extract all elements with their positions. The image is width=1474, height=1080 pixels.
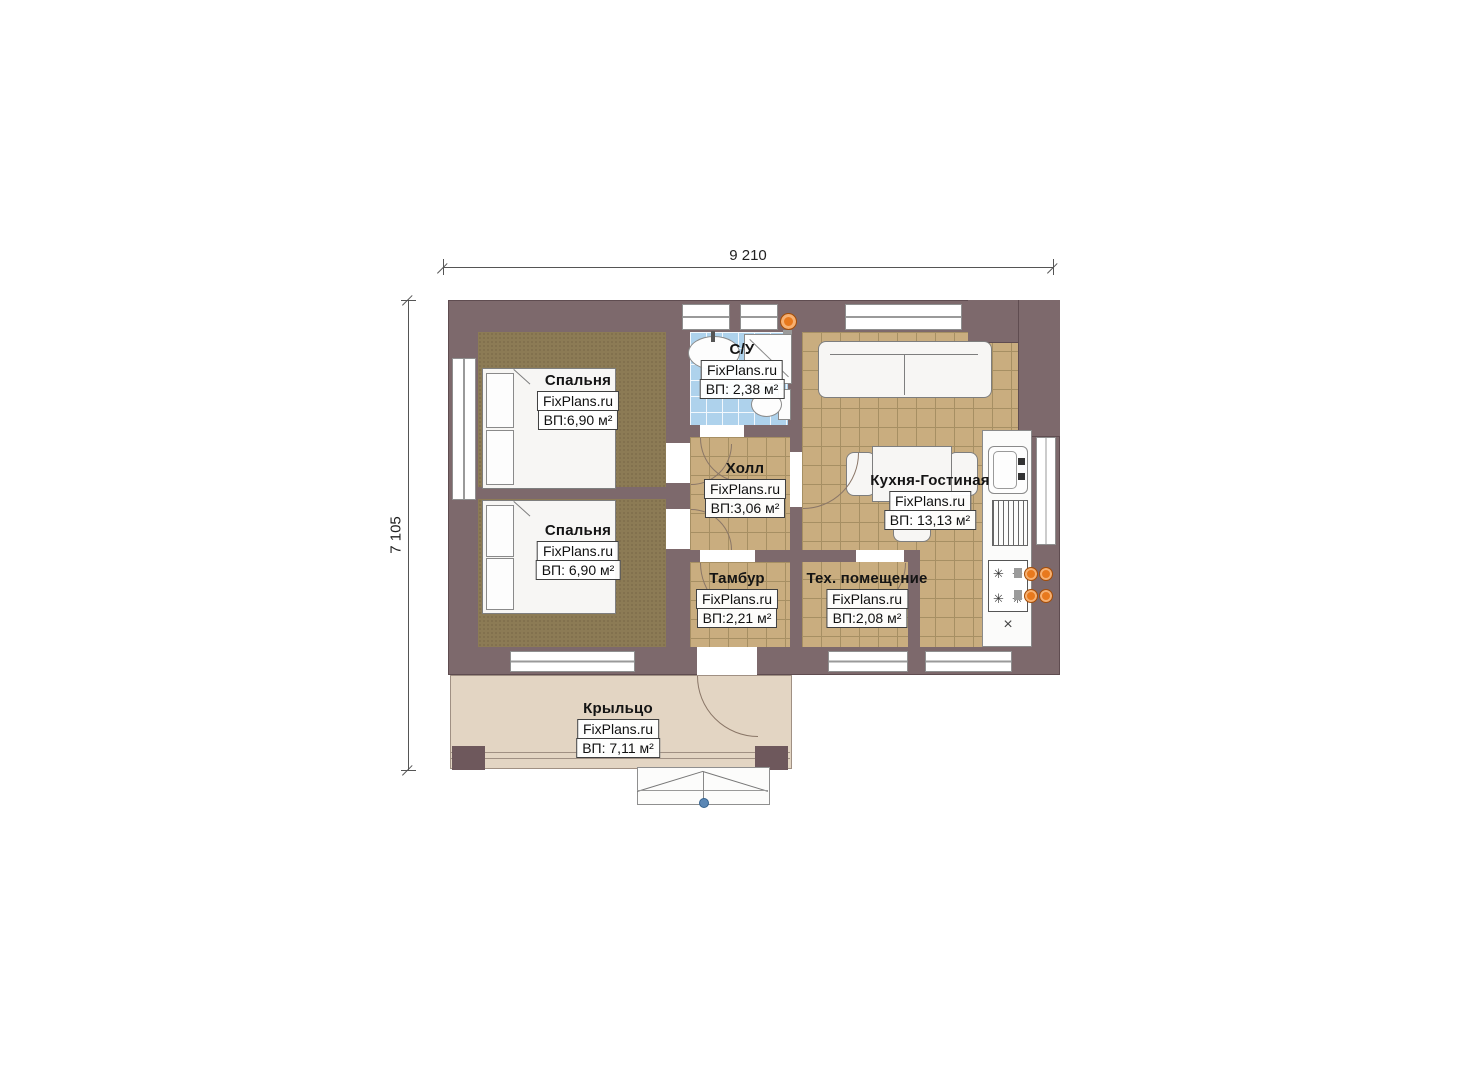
- watermark-box: FixPlans.ru: [577, 719, 659, 739]
- watermark-box: FixPlans.ru: [696, 589, 778, 609]
- stove-knob-4: [1039, 589, 1053, 603]
- bed-1-pillow-top: [486, 373, 514, 428]
- door-opening-bedroom-1: [666, 443, 690, 483]
- room-label-porch: Крыльцо FixPlans.ru ВП: 7,11 м²: [576, 700, 660, 758]
- watermark-box: FixPlans.ru: [701, 360, 783, 380]
- door-opening-bedroom-2: [666, 509, 690, 549]
- dimension-top-line: [443, 267, 1053, 268]
- dimension-left-tick-bottom: [401, 770, 416, 771]
- stove-knob-2: [1039, 567, 1053, 581]
- porch-edge-line-2: [450, 758, 790, 759]
- door-opening-entrance: [697, 647, 757, 675]
- burner-icon: ✳: [993, 566, 1004, 582]
- room-label-hall: Холл FixPlans.ru ВП:3,06 м²: [704, 460, 786, 518]
- room-name: Крыльцо: [576, 700, 660, 717]
- room-name: Холл: [704, 460, 786, 477]
- sofa-divider-line: [904, 354, 905, 395]
- room-name: Спальня: [537, 372, 619, 389]
- wall-corner-block-right: [1018, 300, 1060, 437]
- stove-knob-plate-1: [1014, 568, 1022, 578]
- area-box: ВП:3,06 м²: [705, 498, 786, 518]
- room-label-bedroom-1: Спальня FixPlans.ru ВП:6,90 м²: [537, 372, 619, 430]
- cross-mark-icon: ×: [998, 615, 1018, 635]
- room-name: Спальня: [536, 522, 621, 539]
- watermark-box: FixPlans.ru: [537, 541, 619, 561]
- watermark-box: FixPlans.ru: [826, 589, 908, 609]
- door-opening-tech-room: [856, 550, 904, 562]
- area-box: ВП: 13,13 м²: [884, 510, 976, 530]
- room-name: Кухня-Гостиная: [870, 472, 989, 489]
- window-right-kitchen: [1036, 437, 1056, 545]
- room-name: С/У: [700, 341, 785, 358]
- window-left-bedrooms: [452, 358, 476, 500]
- window-top-kitchen: [845, 304, 962, 330]
- window-bottom-tech-room: [828, 651, 908, 672]
- room-label-bedroom-2: Спальня FixPlans.ru ВП: 6,90 м²: [536, 522, 621, 580]
- area-box: ВП: 6,90 м²: [536, 560, 621, 580]
- dimension-left-line: [408, 300, 409, 770]
- area-box: ВП:2,08 м²: [827, 608, 908, 628]
- stove-knob-plate-2: [1014, 590, 1022, 600]
- door-opening-kitchen: [790, 452, 802, 507]
- window-top-bathroom-2: [740, 304, 778, 330]
- porch-post-left: [452, 746, 485, 770]
- kitchen-sink-basin: [993, 451, 1017, 489]
- bed-1-pillow-bottom: [486, 430, 514, 485]
- stove-knob-3: [1024, 589, 1038, 603]
- burner-icon: ✳: [993, 591, 1004, 607]
- bed-2-pillow-top: [486, 505, 514, 557]
- dish-rack: [992, 500, 1028, 546]
- room-name: Тамбур: [696, 570, 778, 587]
- faucet-dot-1: [1018, 458, 1025, 465]
- room-label-bathroom: С/У FixPlans.ru ВП: 2,38 м²: [700, 341, 785, 399]
- wall-tech-top-left: [790, 550, 856, 562]
- dimension-top-label: 9 210: [729, 247, 767, 264]
- room-label-tech-room: Тех. помещение FixPlans.ru ВП:2,08 м²: [806, 570, 927, 628]
- watermark-box: FixPlans.ru: [889, 491, 971, 511]
- entry-point-dot: [699, 798, 709, 808]
- room-name: Тех. помещение: [806, 570, 927, 587]
- window-bottom-bedroom-2: [510, 651, 635, 672]
- door-opening-bathroom: [700, 425, 744, 437]
- sofa: [818, 341, 992, 398]
- bed-2-pillow-bottom: [486, 558, 514, 610]
- faucet-dot-2: [1018, 473, 1025, 480]
- stove: ✳ ✳ ✳ ✳: [988, 560, 1028, 612]
- stove-knob-1: [1024, 567, 1038, 581]
- wall-tech-top-right: [904, 550, 920, 562]
- window-top-bathroom-1: [682, 304, 730, 330]
- floor-plan-canvas: 9 210 7 105: [0, 0, 1474, 1080]
- area-box: ВП:6,90 м²: [538, 410, 619, 430]
- watermark-box: FixPlans.ru: [704, 479, 786, 499]
- watermark-box: FixPlans.ru: [537, 391, 619, 411]
- area-box: ВП: 2,38 м²: [700, 379, 785, 399]
- dimension-left-tick-top: [401, 300, 416, 301]
- door-opening-vestibule: [700, 550, 755, 562]
- dimension-left-label: 7 105: [388, 516, 405, 554]
- area-box: ВП: 7,11 м²: [576, 738, 660, 758]
- window-bottom-kitchen: [925, 651, 1012, 672]
- boiler-icon: [780, 313, 797, 330]
- area-box: ВП:2,21 м²: [697, 608, 778, 628]
- room-label-kitchen-living: Кухня-Гостиная FixPlans.ru ВП: 13,13 м²: [870, 472, 989, 530]
- room-label-vestibule: Тамбур FixPlans.ru ВП:2,21 м²: [696, 570, 778, 628]
